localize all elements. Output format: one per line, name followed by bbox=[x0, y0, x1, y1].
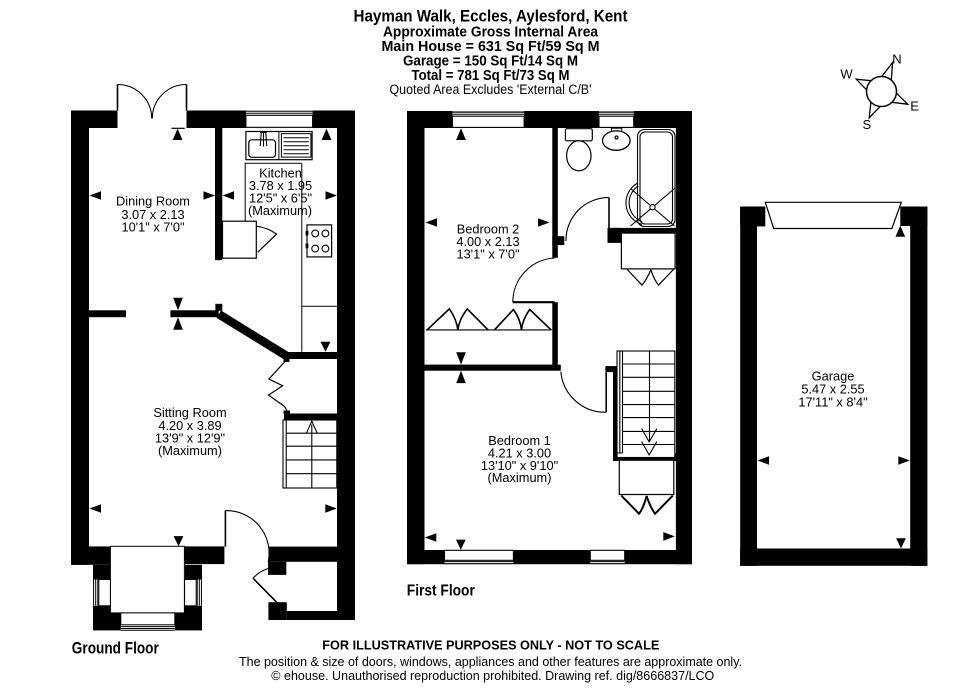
svg-text:13'1" x 7'0": 13'1" x 7'0" bbox=[456, 247, 519, 262]
svg-text:© ehouse. Unauthorised reprodu: © ehouse. Unauthorised reproduction proh… bbox=[271, 668, 714, 683]
svg-text:First Floor: First Floor bbox=[407, 583, 475, 600]
svg-text:Ground Floor: Ground Floor bbox=[72, 639, 159, 657]
svg-text:(Maximum): (Maximum) bbox=[248, 203, 312, 218]
svg-text:S: S bbox=[862, 117, 871, 132]
svg-text:10'1" x 7'0": 10'1" x 7'0" bbox=[121, 220, 184, 235]
svg-text:17'11" x 8'4": 17'11" x 8'4" bbox=[798, 395, 867, 410]
svg-text:(Maximum): (Maximum) bbox=[158, 443, 222, 458]
svg-text:W: W bbox=[840, 67, 853, 82]
svg-text:N: N bbox=[892, 52, 901, 67]
svg-text:FOR ILLUSTRATIVE PURPOSES ONLY: FOR ILLUSTRATIVE PURPOSES ONLY - NOT TO … bbox=[322, 637, 659, 652]
svg-text:Quoted Area Excludes 'External: Quoted Area Excludes 'External C/B' bbox=[390, 82, 592, 98]
svg-text:(Maximum): (Maximum) bbox=[488, 470, 552, 485]
svg-text:Hayman Walk, Eccles, Aylesford: Hayman Walk, Eccles, Aylesford, Kent bbox=[354, 6, 628, 25]
svg-text:E: E bbox=[910, 99, 919, 114]
